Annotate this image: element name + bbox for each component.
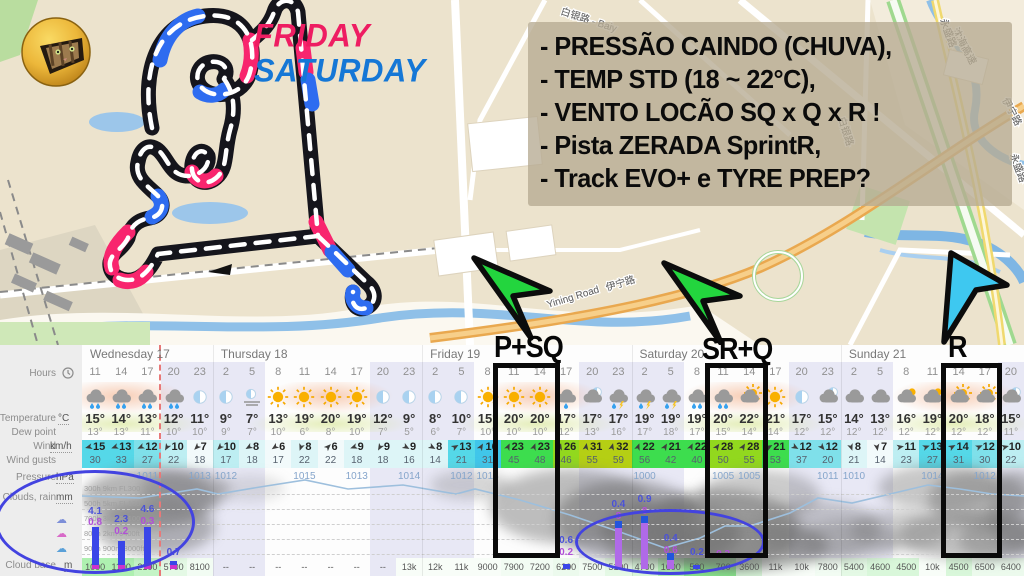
temperature-cell: 19°: [291, 411, 317, 426]
weather-icon-cloud: [867, 384, 893, 410]
cloud-base-cell: 6400: [998, 562, 1024, 572]
wind-gust-cell: 22: [318, 455, 344, 466]
cloud-base-cell: --: [239, 562, 265, 572]
hour-cell: 2: [213, 366, 239, 378]
hour-cell: 5: [448, 366, 474, 378]
dew-point-cell: 10°: [161, 427, 187, 438]
temperature-cell: 16°: [893, 411, 919, 426]
weather-icon-moon: [187, 384, 213, 410]
hour-cell: 8: [893, 366, 919, 378]
rain-amount-label: 0.4: [605, 499, 631, 510]
wind-gust-cell: 17: [265, 455, 291, 466]
dew-point-cell: 10°: [344, 427, 370, 438]
day-separator: [841, 345, 842, 576]
weather-icon-rain: [161, 384, 187, 410]
screenshot-root: 白银路 - Baiy白银路 - Baiy白银路白银路沈海高速沈海高速伊宁路伊宁路…: [0, 0, 1024, 576]
wind-gust-cell: 17: [213, 455, 239, 466]
temperature-cell: 11°: [187, 411, 213, 426]
hour-cell: 14: [318, 366, 344, 378]
wind-gust-cell: 59: [605, 455, 631, 466]
cloud-base-cell: 7800: [815, 562, 841, 572]
weather-icon-moon: [448, 384, 474, 410]
cloud-base-cell: 4500: [893, 562, 919, 572]
temperature-cell: 17°: [789, 411, 815, 426]
clock-icon: [62, 367, 74, 379]
wind-gust-cell: 14: [867, 455, 893, 466]
dew-point-cell: 5°: [396, 427, 422, 438]
row-label-temperature: Temperature: [0, 413, 56, 424]
note-line: - Track EVO+ e TYRE PREP?: [540, 162, 988, 195]
weather-icon-moon: [370, 384, 396, 410]
weather-icon-moon: [789, 384, 815, 410]
wind-gust-cell: 21: [841, 455, 867, 466]
hour-cell: 11: [82, 366, 108, 378]
cloud-base-cell: 10k: [789, 562, 815, 572]
cloud-base-cell: --: [344, 562, 370, 572]
dew-point-cell: 10°: [265, 427, 291, 438]
dew-point-cell: 9°: [213, 427, 239, 438]
dew-point-cell: 16°: [605, 427, 631, 438]
cloud-base-cell: 11k: [448, 562, 474, 572]
hour-cell: 20: [161, 366, 187, 378]
wind-gust-cell: 33: [108, 455, 134, 466]
dew-point-cell: 11°: [134, 427, 160, 438]
note-line: - TEMP STD (18 ~ 22°C),: [540, 63, 988, 96]
hour-cell: 14: [108, 366, 134, 378]
weather-icon-moon: [213, 384, 239, 410]
wind-gust-cell: 56: [632, 455, 658, 466]
session-label-P+SQ: P+SQ: [494, 330, 563, 365]
wind-gust-cell: 16: [396, 455, 422, 466]
pressure-value: 1012: [209, 471, 243, 482]
dew-point-cell: 7°: [370, 427, 396, 438]
cloud-base-cell: 5400: [841, 562, 867, 572]
wind-gust-cell: 22: [291, 455, 317, 466]
hour-cell: 5: [658, 366, 684, 378]
temperature-cell: 8°: [422, 411, 448, 426]
weather-icon-sun: [318, 384, 344, 410]
pressure-value: 1010: [837, 471, 871, 482]
saturday-label: SATURDAY: [254, 52, 426, 90]
day-header[interactable]: Wednesday 17: [90, 347, 170, 361]
hour-cell: 23: [187, 366, 213, 378]
dew-point-cell: 18°: [658, 427, 684, 438]
hour-cell: 2: [632, 366, 658, 378]
weather-icon-fog: [239, 384, 265, 410]
hour-cell: 5: [867, 366, 893, 378]
weather-icon-rain: [82, 384, 108, 410]
wind-gust-cell: 23: [893, 455, 919, 466]
weather-icon-cloud: [841, 384, 867, 410]
row-label-wind-gusts: Wind gusts: [7, 455, 56, 466]
cloud-base-cell: --: [370, 562, 396, 572]
temperature-cell: 17°: [605, 411, 631, 426]
temperature-cell: 20°: [318, 411, 344, 426]
dew-point-cell: 13°: [108, 427, 134, 438]
wind-gust-cell: 21: [448, 455, 474, 466]
session-highlight-box-R: [941, 363, 1002, 558]
wind-gust-cell: 18: [239, 455, 265, 466]
cloud-base-cell: --: [213, 562, 239, 572]
pressure-value: 1015: [287, 471, 321, 482]
wind-gust-cell: 55: [579, 455, 605, 466]
weather-icon-rain: [108, 384, 134, 410]
temperature-cell: 12°: [161, 411, 187, 426]
unit-wind: km/h: [50, 441, 72, 453]
weather-icon-moon: [422, 384, 448, 410]
cloud-base-cell: 4600: [867, 562, 893, 572]
temperature-cell: 14°: [108, 411, 134, 426]
dew-point-cell: 12°: [867, 427, 893, 438]
cloud-base-cell: --: [291, 562, 317, 572]
map-area: 白银路 - Baiy白银路 - Baiy白银路白银路沈海高速沈海高速伊宁路伊宁路…: [0, 0, 1024, 345]
cloud-base-cell: 4500: [946, 562, 972, 572]
weather-icon-sun: [291, 384, 317, 410]
hour-cell: 20: [579, 366, 605, 378]
weather-icon-storm: [605, 384, 631, 410]
hour-cell: 2: [422, 366, 448, 378]
weather-icon-sun: [344, 384, 370, 410]
temperature-cell: 10°: [448, 411, 474, 426]
cloud-base-cell: 9000: [475, 562, 501, 572]
temperature-cell: 19°: [344, 411, 370, 426]
dew-point-cell: 6°: [422, 427, 448, 438]
cloud-base-cell: 7200: [527, 562, 553, 572]
note-line: - VENTO LOCÃO SQ x Q x R !: [540, 96, 988, 129]
hour-cell: 23: [396, 366, 422, 378]
dew-point-cell: 7°: [239, 427, 265, 438]
hour-cell: 11: [291, 366, 317, 378]
pressure-value: 1000: [628, 471, 662, 482]
temperature-cell: 13°: [867, 411, 893, 426]
temperature-cell: 17°: [579, 411, 605, 426]
wind-gust-cell: 42: [658, 455, 684, 466]
weather-icon-rain: [134, 384, 160, 410]
hour-cell: 17: [134, 366, 160, 378]
cloud-base-cell: 13k: [396, 562, 422, 572]
temperature-cell: 19°: [658, 411, 684, 426]
wind-gust-cell: 27: [134, 455, 160, 466]
row-label-hours: Hours: [29, 368, 56, 379]
session-highlight-box-P+SQ: [493, 363, 560, 558]
dew-point-cell: 12°: [893, 427, 919, 438]
avatar: [20, 16, 92, 88]
temperature-cell: 19°: [632, 411, 658, 426]
session-label-R: R: [948, 330, 967, 365]
cloud-base-cell: --: [318, 562, 344, 572]
wind-gust-cell: 20: [815, 455, 841, 466]
temperature-cell: 13°: [265, 411, 291, 426]
rain-bar-tip: [170, 565, 177, 569]
weather-icon-moon: [396, 384, 422, 410]
pressure-value: 1014: [392, 471, 426, 482]
hour-cell: 2: [841, 366, 867, 378]
weather-icon-moon-cloud: [579, 384, 605, 410]
cloud-base-cell: --: [265, 562, 291, 572]
cloud-base-cell: 10k: [919, 562, 945, 572]
wind-gust-cell: 37: [789, 455, 815, 466]
temperature-cell: 15°: [815, 411, 841, 426]
hour-cell: 5: [239, 366, 265, 378]
day-header[interactable]: Thursday 18: [221, 347, 288, 361]
dew-point-cell: 12°: [815, 427, 841, 438]
temperature-cell: 12°: [370, 411, 396, 426]
friday-label: FRIDAY: [254, 17, 370, 55]
wind-gust-cell: 22: [161, 455, 187, 466]
cloud-base-cell: 6500: [972, 562, 998, 572]
weather-notes-box: - PRESSÃO CAINDO (CHUVA), - TEMP STD (18…: [528, 22, 1012, 206]
cloud-base-cell: 7900: [501, 562, 527, 572]
weather-icon-cloud-sun: [893, 384, 919, 410]
hour-cell: 8: [265, 366, 291, 378]
dew-point-cell: 10°: [187, 427, 213, 438]
rain-bar: [563, 564, 570, 569]
cloud-base-cell: 8100: [187, 562, 213, 572]
dew-point-cell: 6°: [291, 427, 317, 438]
wind-gust-cell: 18: [370, 455, 396, 466]
day-separator: [213, 345, 214, 576]
session-label-SR+Q: SR+Q: [702, 332, 772, 367]
dew-point-cell: 13°: [82, 427, 108, 438]
temperature-cell: 7°: [239, 411, 265, 426]
weather-icon-storm: [632, 384, 658, 410]
weather-icon-moon-cloud: [815, 384, 841, 410]
dew-point-cell: 12°: [841, 427, 867, 438]
cloud-base-cell: 11k: [762, 562, 788, 572]
hour-cell: 20: [370, 366, 396, 378]
weather-icon-sun: [265, 384, 291, 410]
hour-cell: 17: [344, 366, 370, 378]
temperature-cell: 15°: [82, 411, 108, 426]
wind-gust-cell: 18: [344, 455, 370, 466]
dew-point-cell: 17°: [632, 427, 658, 438]
day-separator: [422, 345, 423, 576]
day-header[interactable]: Friday 19: [430, 347, 480, 361]
cloud-base-cell: 12k: [422, 562, 448, 572]
day-header[interactable]: Saturday 20: [640, 347, 705, 361]
dew-point-cell: 12°: [789, 427, 815, 438]
rain-highlight-ellipse-wednesday: [0, 470, 195, 574]
rain-amount-label: 0.9: [632, 494, 658, 505]
unit-temperature: °C: [58, 413, 69, 425]
pressure-value: 1013: [340, 471, 374, 482]
temperature-cell: 14°: [841, 411, 867, 426]
session-highlight-box-SR+Q: [705, 363, 768, 558]
hour-cell: 20: [789, 366, 815, 378]
note-line: - PRESSÃO CAINDO (CHUVA),: [540, 30, 988, 63]
dew-point-cell: 7°: [448, 427, 474, 438]
day-header[interactable]: Sunday 21: [849, 347, 906, 361]
temperature-cell: 9°: [396, 411, 422, 426]
weather-icon-storm: [658, 384, 684, 410]
note-line: - Pista ZERADA SprintR,: [540, 129, 988, 162]
hour-cell: 23: [605, 366, 631, 378]
wind-gust-cell: 30: [82, 455, 108, 466]
wind-gust-cell: 14: [422, 455, 448, 466]
temperature-cell: 13°: [134, 411, 160, 426]
wind-gust-cell: 18: [187, 455, 213, 466]
dew-point-cell: 13°: [579, 427, 605, 438]
temperature-cell: 9°: [213, 411, 239, 426]
dew-point-cell: 8°: [318, 427, 344, 438]
row-label-dew-point: Dew point: [12, 427, 56, 438]
hour-cell: 23: [815, 366, 841, 378]
